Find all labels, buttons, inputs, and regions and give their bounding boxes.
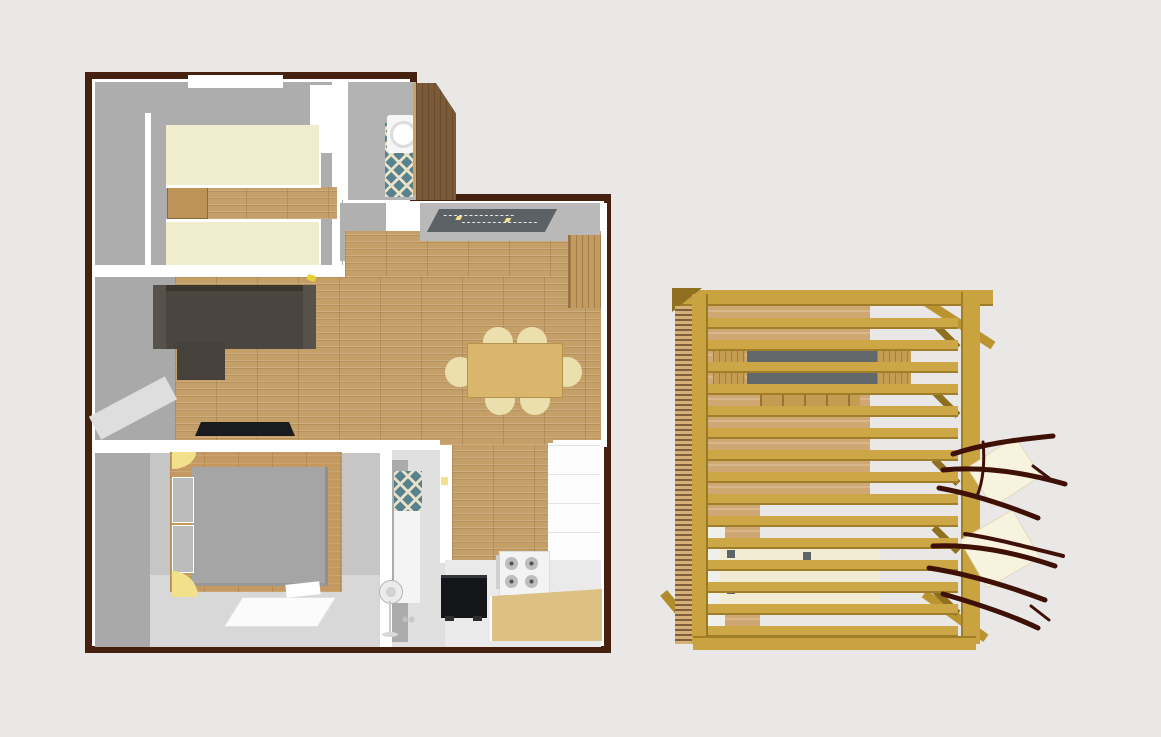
single-bed-1[interactable] [166,125,321,188]
doormat-stripe [443,215,514,216]
tall-wardrobe[interactable] [568,235,603,308]
single-bed-2[interactable] [166,219,321,270]
white-desk[interactable] [224,597,337,627]
fan-base [382,632,398,637]
nightstand[interactable] [167,186,208,219]
shower-tiles [394,471,422,511]
side-slat-screen [675,306,692,644]
roof-slat [703,384,958,395]
light-switch[interactable] [441,477,448,485]
bedroom-wall-segment [145,113,151,265]
kitchen-counter[interactable] [490,589,602,641]
oven-foot [473,616,482,621]
bare-branches[interactable] [913,426,1078,641]
cushion-divider [803,552,811,560]
oven-foot [445,616,454,621]
burner [525,557,538,570]
double-bed[interactable] [192,467,328,586]
apartment-floorplan [88,75,607,648]
wall-tv[interactable] [195,422,295,436]
pillow [172,525,194,573]
oven[interactable] [441,575,487,618]
sink-items [401,615,415,624]
outdoor-sofa-cushions[interactable] [720,546,880,608]
bedroom-window [188,75,283,88]
pergola-deck[interactable] [675,288,995,650]
scene [0,0,1161,737]
parquet-corridor [452,445,548,563]
hob-handle [496,555,500,589]
left-post [692,294,708,644]
standing-fan[interactable] [379,580,403,604]
sofa-armrest [303,285,316,349]
bathroom-wall [340,82,348,200]
burner [525,575,538,588]
entry-doormat[interactable] [427,209,557,232]
doormat-stripe [462,222,538,223]
burner [505,557,518,570]
roof-slat [703,406,958,417]
bedroom-wood-strip [205,187,337,219]
roof-slat [703,362,958,373]
roof-slat [703,318,958,329]
sofa-chaise [177,342,225,380]
sofa-armrest [153,285,166,349]
corner-sofa[interactable] [153,285,316,349]
roof-slat [703,340,958,351]
cushion-divider [727,550,735,558]
fan-pole [389,601,391,633]
corridor-wall [440,445,452,563]
doormat-marker [455,216,462,220]
dining-right-wall [601,203,607,447]
pillow [172,477,194,523]
burner [505,575,518,588]
bedroom-living-wall [95,265,343,277]
double-bedroom-left-shading [95,453,150,647]
dining-table[interactable] [467,343,563,398]
top-beam [678,290,993,306]
